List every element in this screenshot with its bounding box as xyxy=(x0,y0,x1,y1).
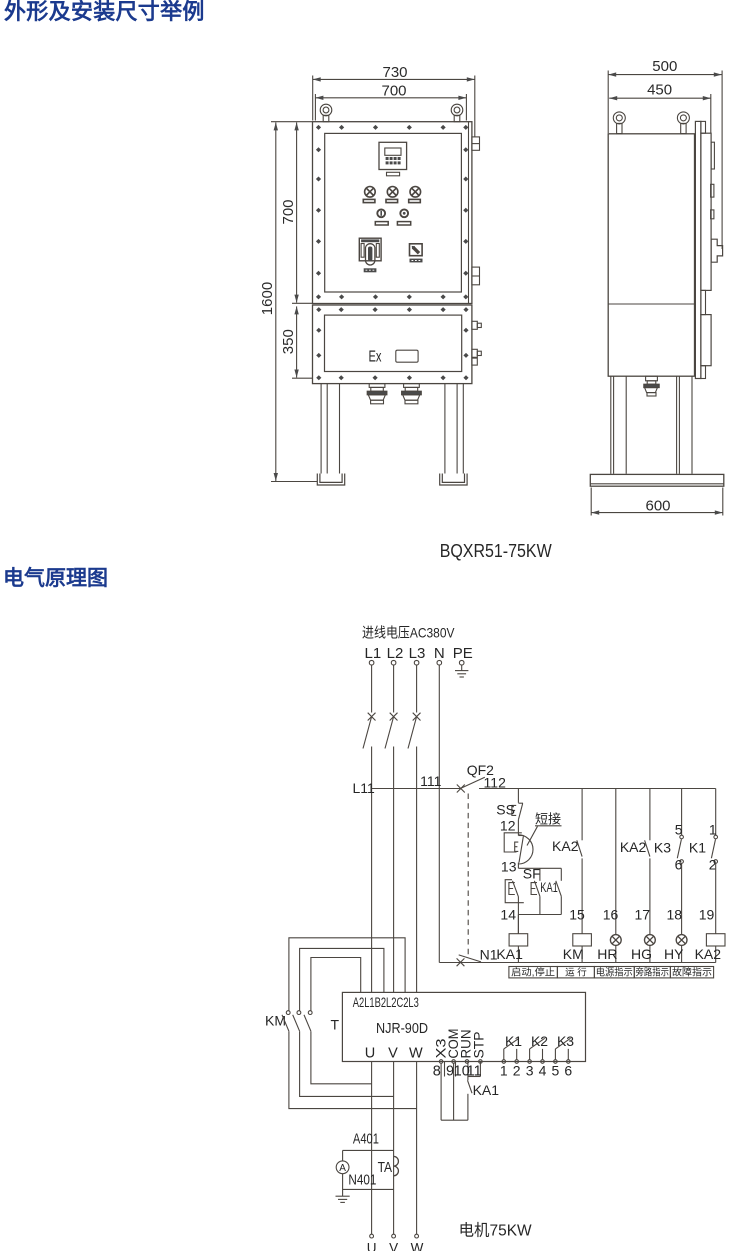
svg-text:V: V xyxy=(388,1046,398,1062)
svg-text:A: A xyxy=(339,1163,346,1174)
svg-text:进线电压AC380V: 进线电压AC380V xyxy=(362,625,455,641)
svg-text:启动,停止: 启动,停止 xyxy=(511,967,556,979)
svg-text:短接: 短接 xyxy=(535,812,561,827)
svg-text:6: 6 xyxy=(564,1063,572,1079)
svg-text:730: 730 xyxy=(382,64,407,81)
svg-text:L1: L1 xyxy=(365,645,382,662)
svg-text:K3: K3 xyxy=(654,840,671,856)
svg-text:N1: N1 xyxy=(480,947,498,963)
svg-text:18: 18 xyxy=(667,907,683,923)
svg-text:T: T xyxy=(331,1017,340,1033)
svg-text:600: 600 xyxy=(645,498,670,515)
svg-text:KA1: KA1 xyxy=(540,879,558,895)
svg-text:HY: HY xyxy=(664,946,684,962)
svg-text:700: 700 xyxy=(381,83,406,100)
svg-text:A401: A401 xyxy=(353,1132,379,1148)
svg-text:HG: HG xyxy=(631,946,652,962)
svg-text:W: W xyxy=(409,1046,423,1062)
svg-text:KA2: KA2 xyxy=(695,946,722,962)
svg-text:13: 13 xyxy=(501,859,517,875)
svg-text:17: 17 xyxy=(635,907,651,923)
svg-text:KA2: KA2 xyxy=(552,838,579,854)
svg-text:8: 8 xyxy=(433,1064,441,1080)
svg-text:K1: K1 xyxy=(505,1033,522,1049)
svg-text:电气原理图: 电气原理图 xyxy=(3,566,108,590)
svg-text:1: 1 xyxy=(500,1063,508,1079)
svg-text:KA2: KA2 xyxy=(620,839,647,855)
svg-text:15: 15 xyxy=(569,907,585,923)
svg-text:W: W xyxy=(411,1240,424,1251)
svg-text:11: 11 xyxy=(467,1064,482,1080)
svg-text:700: 700 xyxy=(280,199,297,224)
svg-text:STP: STP xyxy=(471,1032,487,1059)
svg-text:14: 14 xyxy=(500,907,516,923)
svg-text:111: 111 xyxy=(420,773,441,789)
svg-text:L2: L2 xyxy=(387,645,404,662)
svg-text:Ex: Ex xyxy=(369,349,382,366)
svg-text:2: 2 xyxy=(513,1063,521,1079)
svg-text:外形及安装尺寸举例: 外形及安装尺寸举例 xyxy=(4,0,205,24)
svg-text:350: 350 xyxy=(280,329,297,354)
svg-text:PE: PE xyxy=(453,645,473,662)
svg-text:K2: K2 xyxy=(531,1033,548,1049)
svg-text:N: N xyxy=(434,645,445,662)
svg-text:HR: HR xyxy=(597,946,617,962)
svg-text:5: 5 xyxy=(552,1063,560,1079)
svg-text:运 行: 运 行 xyxy=(565,967,587,979)
svg-text:12: 12 xyxy=(500,818,516,834)
svg-text:19: 19 xyxy=(699,907,715,923)
svg-text:3: 3 xyxy=(526,1063,534,1079)
svg-text:K1: K1 xyxy=(689,840,706,856)
svg-text:N401: N401 xyxy=(348,1173,376,1189)
svg-text:TA: TA xyxy=(378,1160,393,1176)
svg-text:电源指示: 电源指示 xyxy=(596,967,633,979)
svg-text:KA1: KA1 xyxy=(496,946,523,962)
svg-text:旁路指示: 旁路指示 xyxy=(636,967,670,979)
svg-text:A2L1B2L2C2L3: A2L1B2L2C2L3 xyxy=(353,995,419,1010)
svg-text:4: 4 xyxy=(539,1063,547,1079)
svg-text:450: 450 xyxy=(647,82,672,99)
svg-text:SF: SF xyxy=(523,866,541,882)
svg-text:112: 112 xyxy=(484,775,507,791)
svg-text:500: 500 xyxy=(652,58,677,75)
svg-text:KM: KM xyxy=(563,946,584,962)
svg-text:SS: SS xyxy=(496,802,515,818)
svg-text:V: V xyxy=(389,1240,398,1251)
svg-text:1600: 1600 xyxy=(259,282,276,315)
svg-text:K3: K3 xyxy=(557,1033,574,1049)
svg-text:KM: KM xyxy=(265,1013,286,1029)
svg-text:L3: L3 xyxy=(409,645,426,662)
svg-text:BQXR51-75KW: BQXR51-75KW xyxy=(440,540,552,561)
svg-text:电机75KW: 电机75KW xyxy=(459,1222,533,1240)
svg-text:KA1: KA1 xyxy=(473,1082,500,1098)
svg-text:16: 16 xyxy=(603,907,619,923)
svg-text:故障指示: 故障指示 xyxy=(672,967,712,979)
svg-text:U: U xyxy=(367,1240,377,1251)
svg-text:NJR-90D: NJR-90D xyxy=(376,1021,428,1037)
svg-text:U: U xyxy=(365,1046,375,1062)
